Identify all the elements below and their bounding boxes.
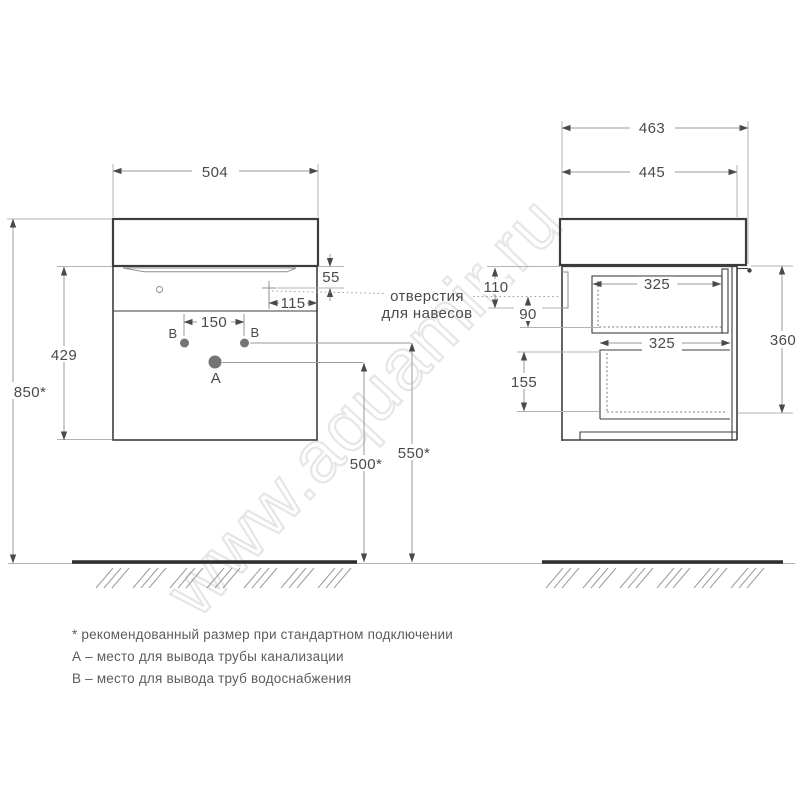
- dim-504: 504: [202, 164, 228, 181]
- dim-463: 463: [639, 120, 665, 137]
- dim-500: 500*: [350, 456, 382, 473]
- front-sink-top: [113, 219, 318, 266]
- hole-b-right: [240, 339, 249, 348]
- label-b-right: B: [250, 325, 259, 340]
- footnote-asterisk: * рекомендованный размер при стандартном…: [72, 624, 453, 646]
- side-sink-top: [560, 219, 746, 265]
- footnote-b: В – место для вывода труб водоснабжения: [72, 668, 453, 690]
- dim-360: 360: [770, 332, 796, 349]
- dim-429: 429: [51, 347, 77, 364]
- dim-445: 445: [639, 164, 665, 181]
- footnotes: * рекомендованный размер при стандартном…: [72, 624, 453, 690]
- footnote-a: А – место для вывода трубы канализации: [72, 646, 453, 668]
- dim-110: 110: [483, 279, 508, 296]
- note-line2: для навесов: [382, 305, 473, 322]
- dim-115: 115: [280, 295, 305, 312]
- dim-325-top: 325: [644, 276, 670, 293]
- note-line1: отверстия: [390, 288, 464, 305]
- hanger-hole-left: [157, 287, 163, 293]
- hole-b-left: [180, 339, 189, 348]
- label-a: A: [211, 370, 221, 387]
- ground: [8, 562, 795, 588]
- hole-a: [209, 356, 222, 369]
- label-b-left: B: [168, 326, 177, 341]
- dim-850: 850*: [14, 384, 46, 401]
- dim-325-bottom: 325: [649, 335, 675, 352]
- dim-90: 90: [519, 306, 537, 323]
- lower-drawer: [600, 350, 730, 419]
- dim-155: 155: [511, 374, 537, 391]
- dim-55: 55: [322, 269, 340, 286]
- dim-150: 150: [201, 314, 227, 331]
- page: { "colors": { "lineDark": "#3d3d3d", "li…: [0, 0, 800, 800]
- dim-550: 550*: [398, 445, 430, 462]
- front-cabinet-body: [113, 266, 317, 440]
